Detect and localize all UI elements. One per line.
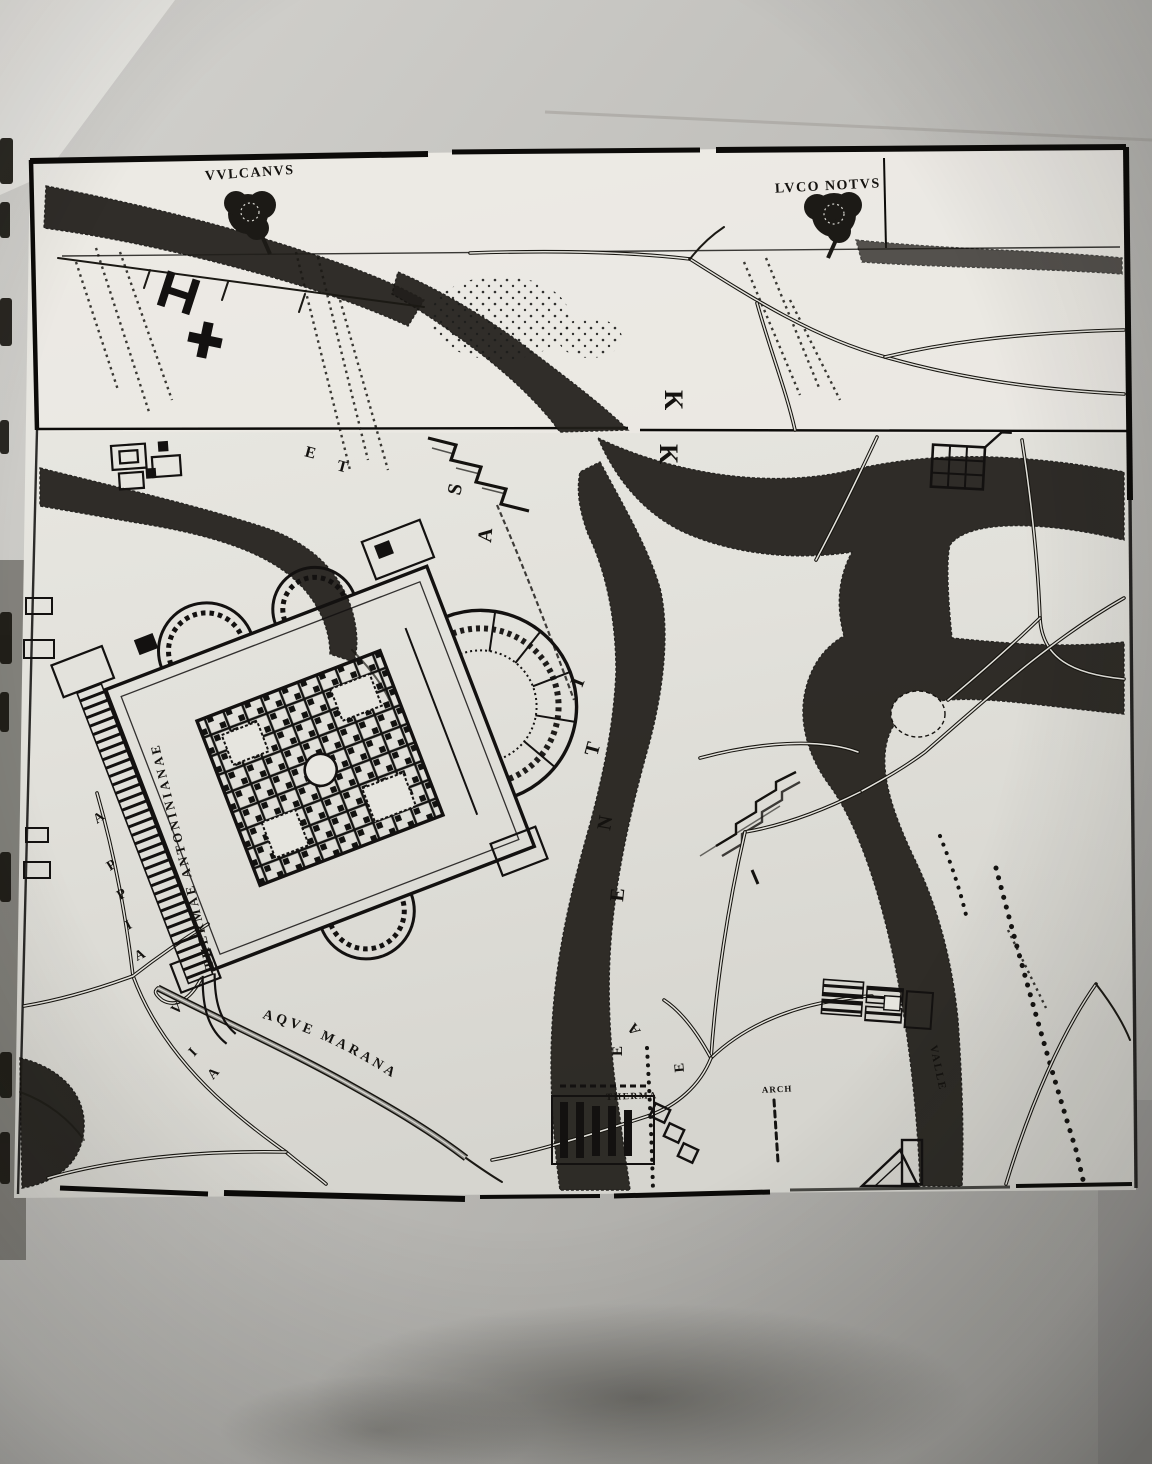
- photo-vignette: [0, 0, 1152, 1464]
- photographed-engraved-map-page: VVLCANVS LVCO NOTVS K K S A I T N E A E …: [0, 0, 1152, 1464]
- map-photo: VVLCANVS LVCO NOTVS K K S A I T N E A E …: [0, 0, 1152, 1464]
